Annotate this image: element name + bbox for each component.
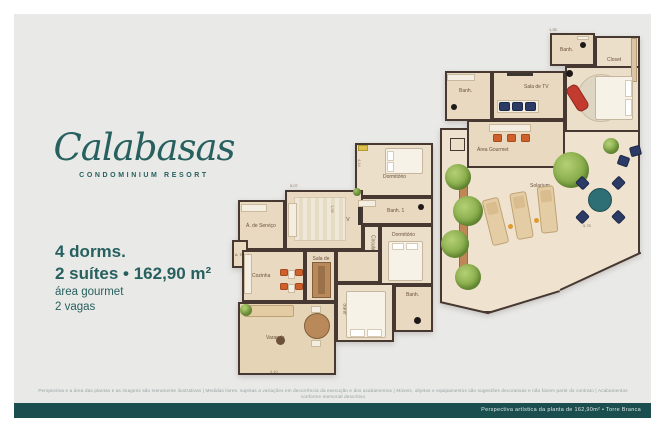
room-hall [336, 250, 380, 283]
footer-bar: Perspectiva artística da planta de 162,9… [14, 403, 651, 418]
tv-panel [358, 207, 361, 225]
bathroom-vanity [358, 200, 376, 207]
bed [385, 148, 423, 174]
dining-chair [295, 283, 303, 290]
unit-specs: 4 dorms. 2 suítes • 162,90 m² área gourm… [55, 241, 211, 315]
room-label: Dormitório [392, 233, 415, 239]
room-label: Cozinha [252, 274, 270, 280]
plant-pot [566, 70, 573, 77]
room-label: Sala de TV [524, 85, 549, 91]
room-label: Dormitório [383, 175, 406, 181]
patio-chair [629, 145, 642, 158]
toilet-icon [451, 104, 457, 110]
room-label: Banh. 1 [387, 209, 404, 215]
side-table [534, 218, 539, 223]
logo-script-calabasas: Calabasas [44, 126, 244, 170]
toilet-icon [414, 317, 421, 324]
tree-icon [441, 230, 469, 258]
bar-stool [493, 134, 502, 142]
tree-icon [453, 196, 483, 226]
dining-chair [280, 269, 288, 276]
spec-vagas: 2 vagas [55, 300, 211, 315]
tree-icon [455, 264, 481, 290]
cafe-table [288, 284, 295, 293]
bed [346, 291, 386, 338]
sofa-cushion [525, 102, 536, 111]
spec-dorms: 4 dorms. [55, 241, 211, 263]
bathroom-vanity [447, 74, 475, 81]
sofa-cushion [499, 102, 510, 111]
footer-bar-caption: Perspectiva artística da planta de 162,9… [481, 403, 641, 418]
tree-icon [445, 164, 471, 190]
tv-panel [507, 73, 533, 76]
legal-disclaimer: Perspectiva e a área das plantas e as im… [38, 388, 628, 400]
dining-chair [295, 269, 303, 276]
kitchen-counter [244, 254, 252, 294]
logo-subtitle: CONDOMINIUM RESORT [44, 172, 244, 179]
room-banheiro-2: Banh. [394, 285, 433, 332]
patio-table [588, 188, 612, 212]
room-label: Banh. [406, 293, 419, 299]
table-runner [318, 266, 325, 294]
balcony-chair [311, 340, 321, 347]
dining-chair [280, 283, 288, 290]
toilet-icon [418, 204, 424, 210]
room-label: Á. de Serviço [246, 224, 276, 230]
bar-stool [521, 134, 530, 142]
balcony-table [304, 313, 330, 339]
bench [358, 145, 368, 151]
side-stool [276, 336, 285, 345]
dimension-label: 1,99 [330, 205, 334, 213]
balcony-chair [311, 306, 321, 313]
room-label: Closet [607, 58, 621, 64]
sofa-cushion [512, 102, 523, 111]
laundry-appliances [241, 204, 267, 212]
sofa [288, 203, 297, 237]
plant-icon [353, 188, 361, 196]
logo: Calabasas CONDOMINIUM RESORT [44, 126, 244, 179]
dimension-label: 1,35 [549, 28, 557, 32]
dimension-label: 4,10 [270, 370, 278, 374]
floorplan-main: Dormitório Banh. 1 Circulação Dormitório… [232, 143, 433, 378]
room-label: Banh. [560, 48, 573, 54]
cafe-table [288, 270, 295, 279]
gourmet-counter [489, 124, 531, 132]
storage-box [450, 138, 465, 151]
brochure-page: Calabasas CONDOMINIUM RESORT 4 dorms. 2 … [0, 0, 665, 432]
bed [388, 241, 423, 281]
side-table [508, 224, 513, 229]
dimension-label: 5,07 [290, 184, 298, 188]
toilet-icon [580, 42, 586, 48]
dimension-label: 5,78 [583, 224, 591, 228]
toilet-tank [577, 36, 589, 40]
floorplan-upper: Solarium Banh. Closet Suíte Banh. Sala d… [437, 28, 642, 320]
slide: Calabasas CONDOMINIUM RESORT 4 dorms. 2 … [14, 14, 651, 418]
dimension-label: 4,14 [357, 159, 361, 167]
plant-icon [240, 304, 252, 316]
living-rug [294, 197, 346, 241]
bed [595, 76, 633, 120]
bush-icon [603, 138, 619, 154]
spec-suites-area: 2 suítes • 162,90 m² [55, 263, 211, 285]
room-label: Banh. [459, 89, 472, 95]
bar-stool [507, 134, 516, 142]
room-label: Área Gourmet [477, 148, 508, 154]
spec-gourmet: área gourmet [55, 285, 211, 300]
